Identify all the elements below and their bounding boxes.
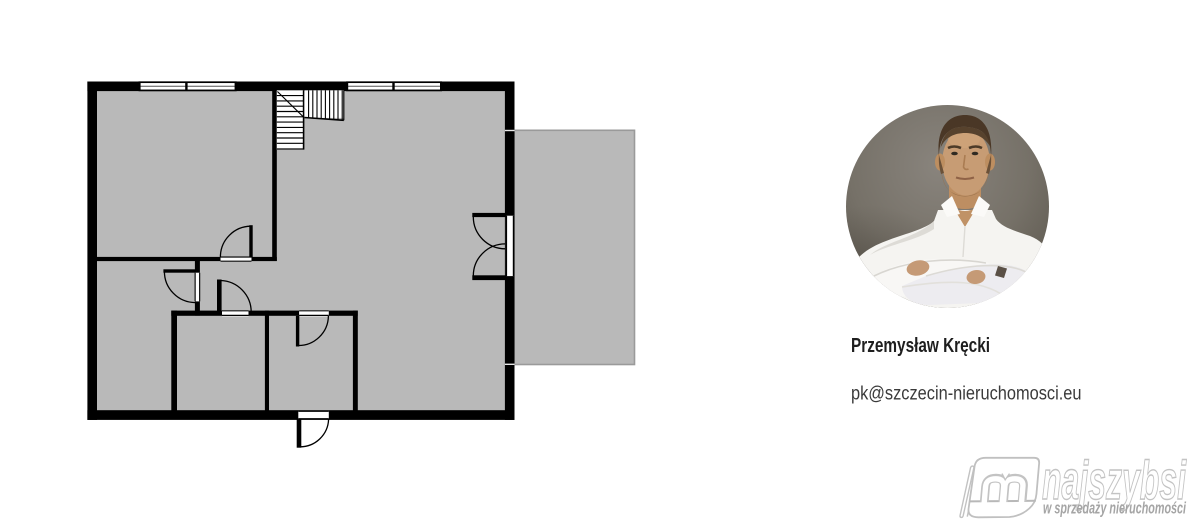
svg-text:w sprzedaży nieruchomości: w sprzedaży nieruchomości [1043, 499, 1187, 518]
svg-text:Przemysław Kręcki: Przemysław Kręcki [851, 335, 990, 357]
svg-text:pk@szczecin-nieruchomosci.eu: pk@szczecin-nieruchomosci.eu [851, 384, 1082, 405]
